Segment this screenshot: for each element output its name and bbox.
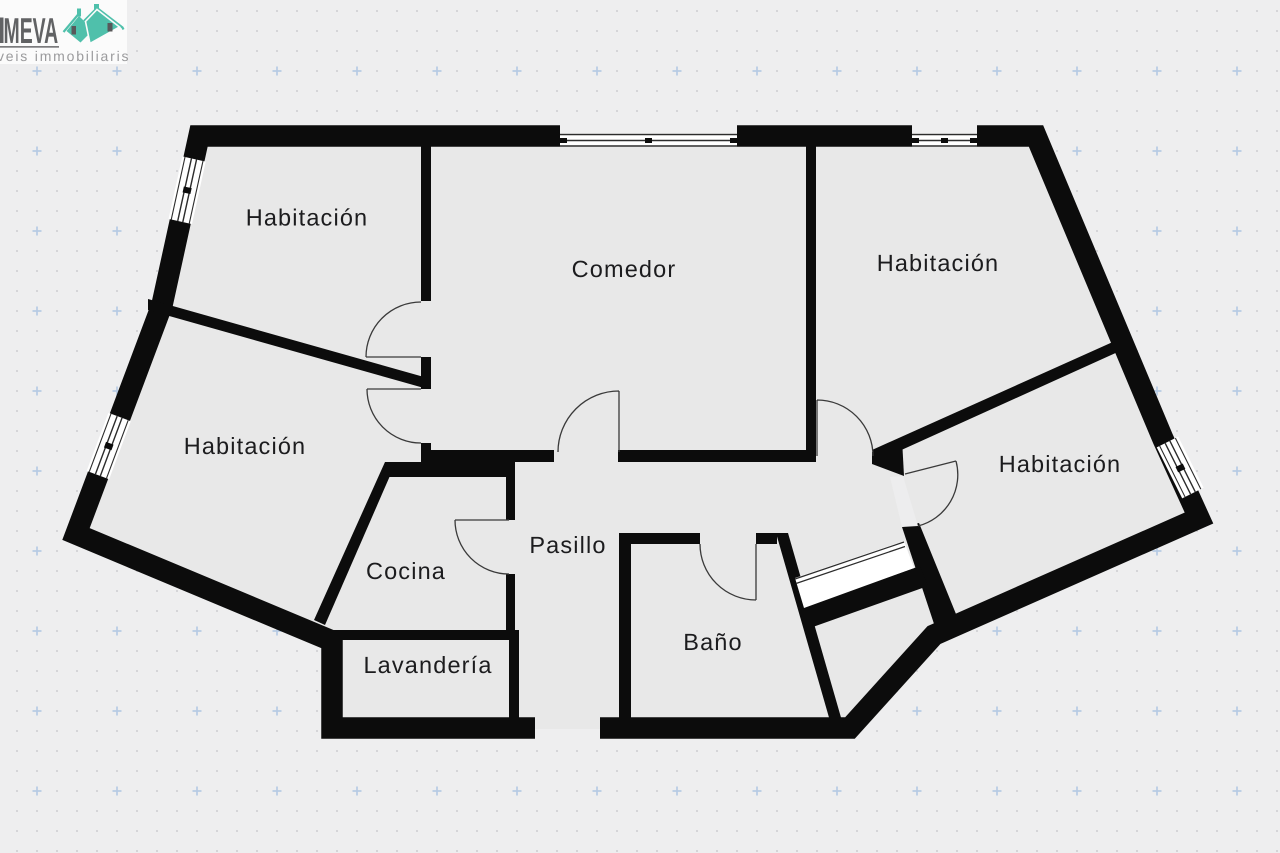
svg-text:Habitación: Habitación [877, 250, 1000, 276]
svg-text:Cocina: Cocina [366, 558, 446, 584]
svg-text:Habitación: Habitación [999, 451, 1122, 477]
svg-text:Pasillo: Pasillo [529, 532, 606, 558]
svg-text:MEVA: MEVA [4, 10, 59, 51]
svg-text:veis immobiliaris: veis immobiliaris [0, 48, 130, 64]
svg-text:Baño: Baño [683, 629, 742, 655]
svg-text:Habitación: Habitación [184, 433, 307, 459]
svg-text:Lavandería: Lavandería [363, 652, 492, 678]
svg-text:Comedor: Comedor [572, 256, 677, 282]
svg-text:Habitación: Habitación [246, 205, 369, 231]
